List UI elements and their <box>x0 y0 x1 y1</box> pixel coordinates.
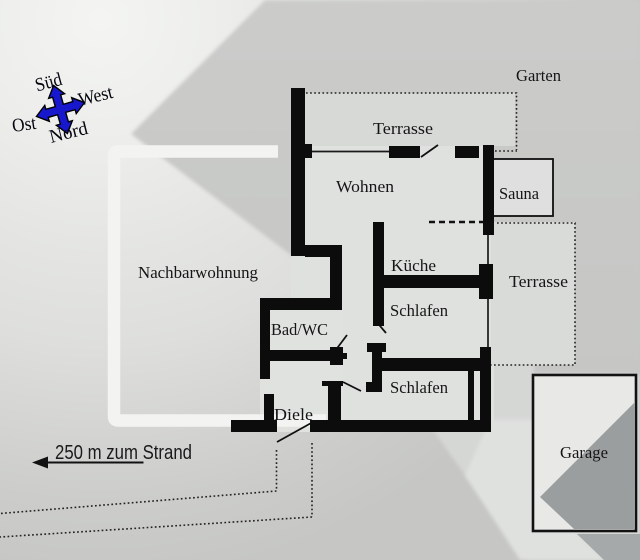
svg-text:Schlafen: Schlafen <box>390 378 448 397</box>
svg-text:Terrasse: Terrasse <box>509 272 568 291</box>
svg-text:Nachbarwohnung: Nachbarwohnung <box>138 263 258 282</box>
svg-text:Terrasse: Terrasse <box>373 119 433 138</box>
svg-text:Diele: Diele <box>274 405 313 424</box>
svg-text:Sauna: Sauna <box>499 184 539 203</box>
svg-text:250 m zum Strand: 250 m zum Strand <box>55 442 192 464</box>
svg-text:Bad/WC: Bad/WC <box>271 320 328 339</box>
svg-text:Schlafen: Schlafen <box>390 301 448 320</box>
svg-text:Wohnen: Wohnen <box>336 177 395 196</box>
svg-text:Küche: Küche <box>391 256 436 275</box>
svg-text:Garten: Garten <box>516 66 561 85</box>
svg-text:Garage: Garage <box>560 443 608 462</box>
svg-text:Ost: Ost <box>11 113 38 137</box>
